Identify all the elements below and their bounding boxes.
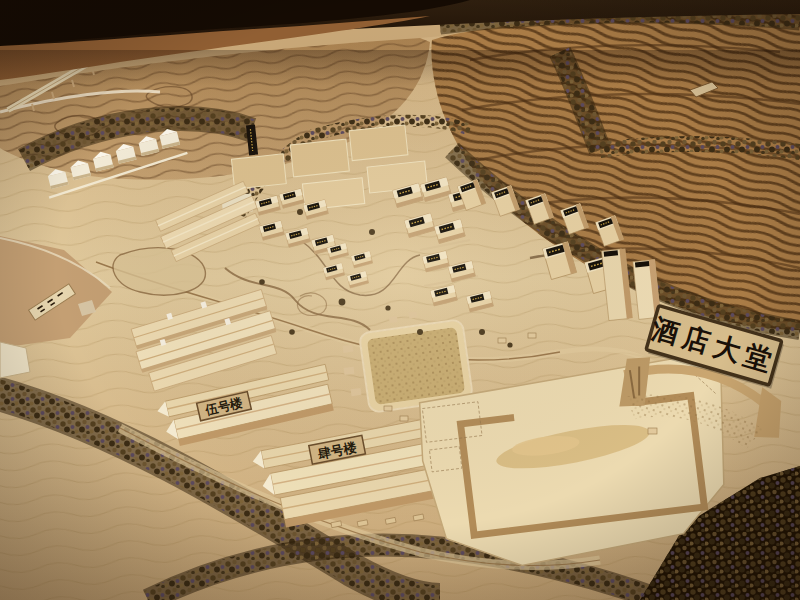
vignette [0, 0, 800, 600]
model-photo: 伍号楼 肆号楼 [0, 0, 800, 600]
model-scene: 伍号楼 肆号楼 [0, 0, 800, 600]
